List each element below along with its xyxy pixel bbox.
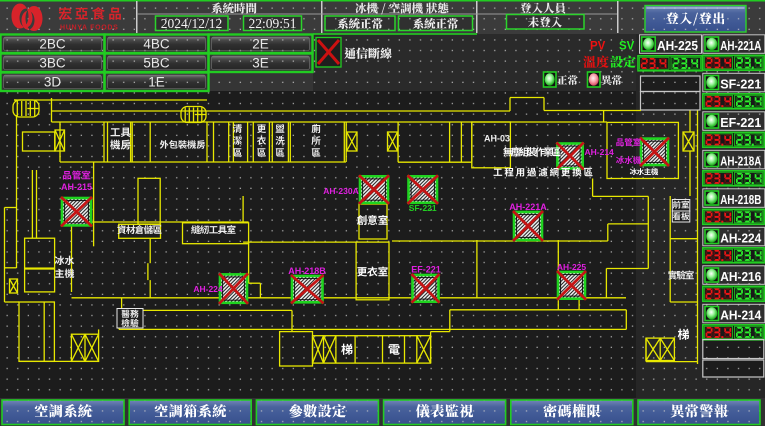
svg-text:AH-225: AH-225 bbox=[657, 38, 698, 53]
svg-text:HUNYA FOODS: HUNYA FOODS bbox=[60, 25, 119, 32]
svg-text:4BC: 4BC bbox=[143, 37, 170, 52]
svg-text:EF-221: EF-221 bbox=[411, 265, 441, 275]
svg-text:AH-218A: AH-218A bbox=[720, 153, 761, 168]
svg-text:5BC: 5BC bbox=[143, 56, 170, 71]
svg-text:AH-214: AH-214 bbox=[720, 307, 762, 322]
svg-text:SF-221: SF-221 bbox=[720, 76, 761, 91]
svg-text:AH-221A: AH-221A bbox=[509, 202, 547, 212]
svg-text:AH-224: AH-224 bbox=[720, 230, 762, 245]
svg-text:AH-215: AH-215 bbox=[61, 182, 92, 192]
svg-text:SV: SV bbox=[619, 41, 635, 53]
svg-text:AH-225: AH-225 bbox=[557, 262, 587, 272]
svg-text:22:09:51: 22:09:51 bbox=[248, 16, 296, 31]
svg-text:EF-221: EF-221 bbox=[720, 115, 761, 130]
svg-text:AH-214: AH-214 bbox=[585, 147, 615, 157]
svg-text:AH-230A: AH-230A bbox=[323, 186, 358, 196]
svg-text:2024/12/12: 2024/12/12 bbox=[161, 16, 223, 31]
svg-text:2BC: 2BC bbox=[39, 37, 66, 52]
svg-text:1E: 1E bbox=[148, 75, 165, 90]
svg-text:AH-218B: AH-218B bbox=[288, 266, 326, 276]
svg-text:AH-216: AH-216 bbox=[720, 269, 761, 284]
svg-text:AH-224: AH-224 bbox=[193, 284, 223, 294]
svg-text:AH-218B: AH-218B bbox=[720, 192, 761, 207]
svg-text:3E: 3E bbox=[252, 56, 269, 71]
svg-text:AH-03: AH-03 bbox=[484, 134, 510, 144]
svg-text:SF-221: SF-221 bbox=[409, 203, 437, 213]
svg-text:3BC: 3BC bbox=[39, 56, 66, 71]
svg-text:AH-221A: AH-221A bbox=[720, 38, 761, 53]
svg-text:2E: 2E bbox=[252, 37, 269, 52]
svg-text:3D: 3D bbox=[44, 75, 62, 90]
svg-text:PV: PV bbox=[590, 41, 606, 53]
